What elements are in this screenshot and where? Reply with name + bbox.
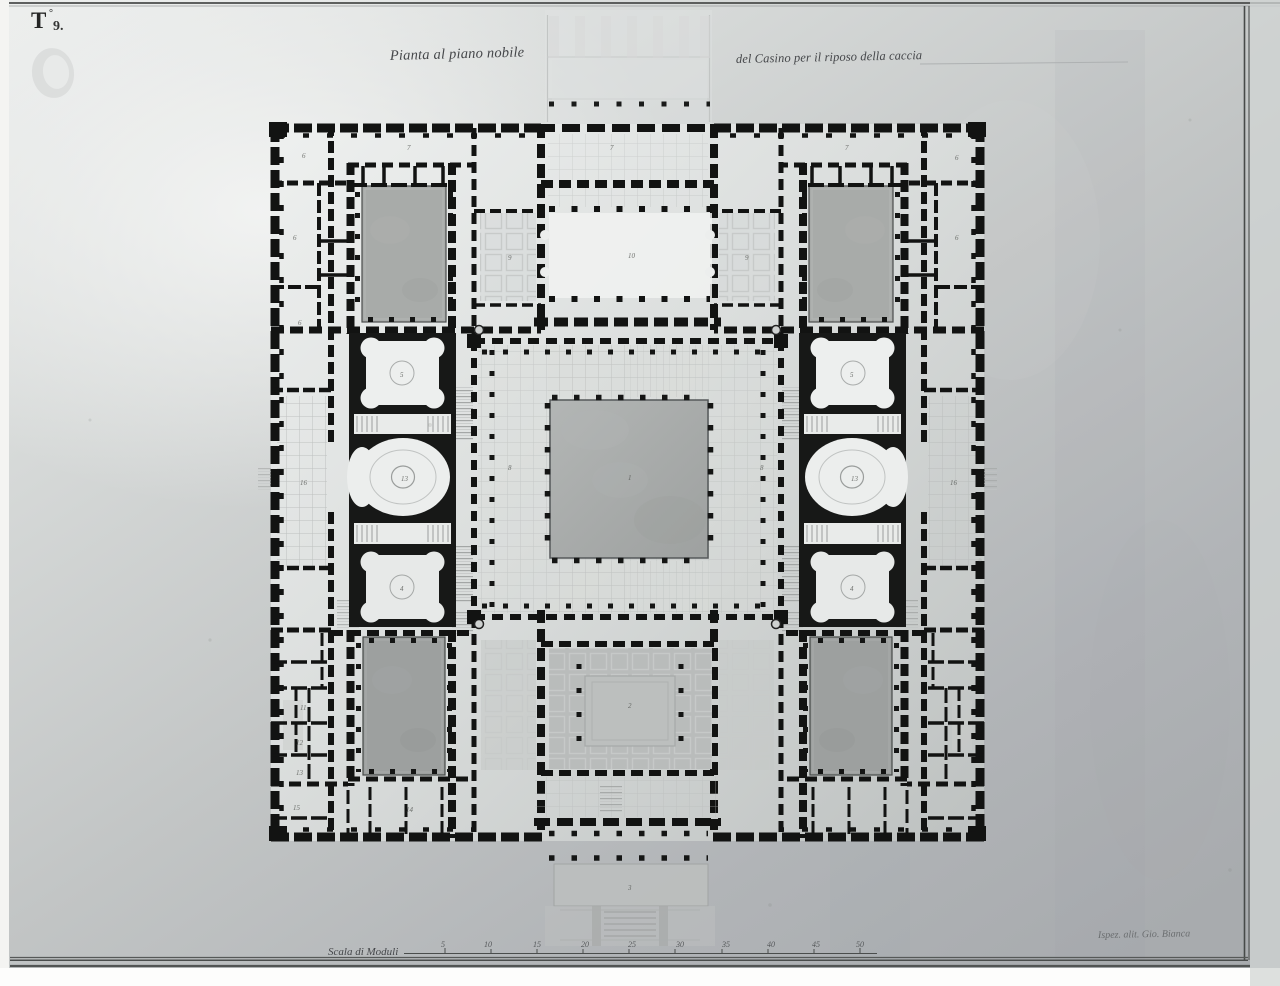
svg-text:3: 3 — [627, 884, 632, 892]
svg-text:6: 6 — [293, 234, 297, 242]
svg-text:2: 2 — [628, 702, 632, 710]
svg-text:12: 12 — [296, 739, 304, 747]
svg-text:Ispez. alit. Gio. Bianca: Ispez. alit. Gio. Bianca — [1097, 928, 1190, 941]
svg-text:11: 11 — [300, 704, 306, 712]
svg-text:9.: 9. — [53, 19, 64, 34]
svg-text:5: 5 — [441, 940, 445, 949]
svg-text:25: 25 — [628, 940, 636, 949]
svg-text:8: 8 — [508, 464, 512, 472]
svg-text:°: ° — [49, 8, 53, 19]
svg-text:6: 6 — [302, 152, 306, 160]
svg-text:6: 6 — [955, 154, 959, 162]
svg-text:7: 7 — [845, 144, 849, 152]
svg-text:16: 16 — [300, 479, 308, 487]
svg-text:35: 35 — [721, 940, 730, 949]
svg-text:15: 15 — [533, 940, 541, 949]
svg-text:15: 15 — [293, 804, 301, 812]
svg-text:7: 7 — [407, 144, 411, 152]
svg-text:30: 30 — [675, 940, 684, 949]
svg-text:6: 6 — [298, 319, 302, 327]
svg-text:13: 13 — [401, 475, 409, 483]
svg-text:50: 50 — [856, 940, 864, 949]
svg-text:40: 40 — [767, 940, 775, 949]
svg-text:45: 45 — [812, 940, 820, 949]
svg-text:Scala di Moduli: Scala di Moduli — [328, 946, 398, 958]
svg-text:6: 6 — [955, 234, 959, 242]
svg-text:9: 9 — [745, 254, 749, 262]
svg-text:5: 5 — [400, 371, 404, 379]
svg-text:16: 16 — [950, 479, 958, 487]
svg-text:14: 14 — [406, 806, 414, 814]
svg-text:10: 10 — [484, 940, 492, 949]
svg-text:9: 9 — [508, 254, 512, 262]
svg-text:13: 13 — [851, 475, 859, 483]
svg-text:10: 10 — [628, 252, 636, 260]
svg-text:8: 8 — [760, 464, 764, 472]
svg-text:20: 20 — [581, 940, 589, 949]
svg-text:7: 7 — [610, 144, 614, 152]
svg-text:13: 13 — [296, 769, 304, 777]
svg-text:4: 4 — [400, 585, 404, 593]
svg-text:5: 5 — [850, 371, 854, 379]
svg-text:T: T — [31, 8, 46, 33]
svg-text:4: 4 — [850, 585, 854, 593]
svg-text:1: 1 — [628, 474, 632, 482]
